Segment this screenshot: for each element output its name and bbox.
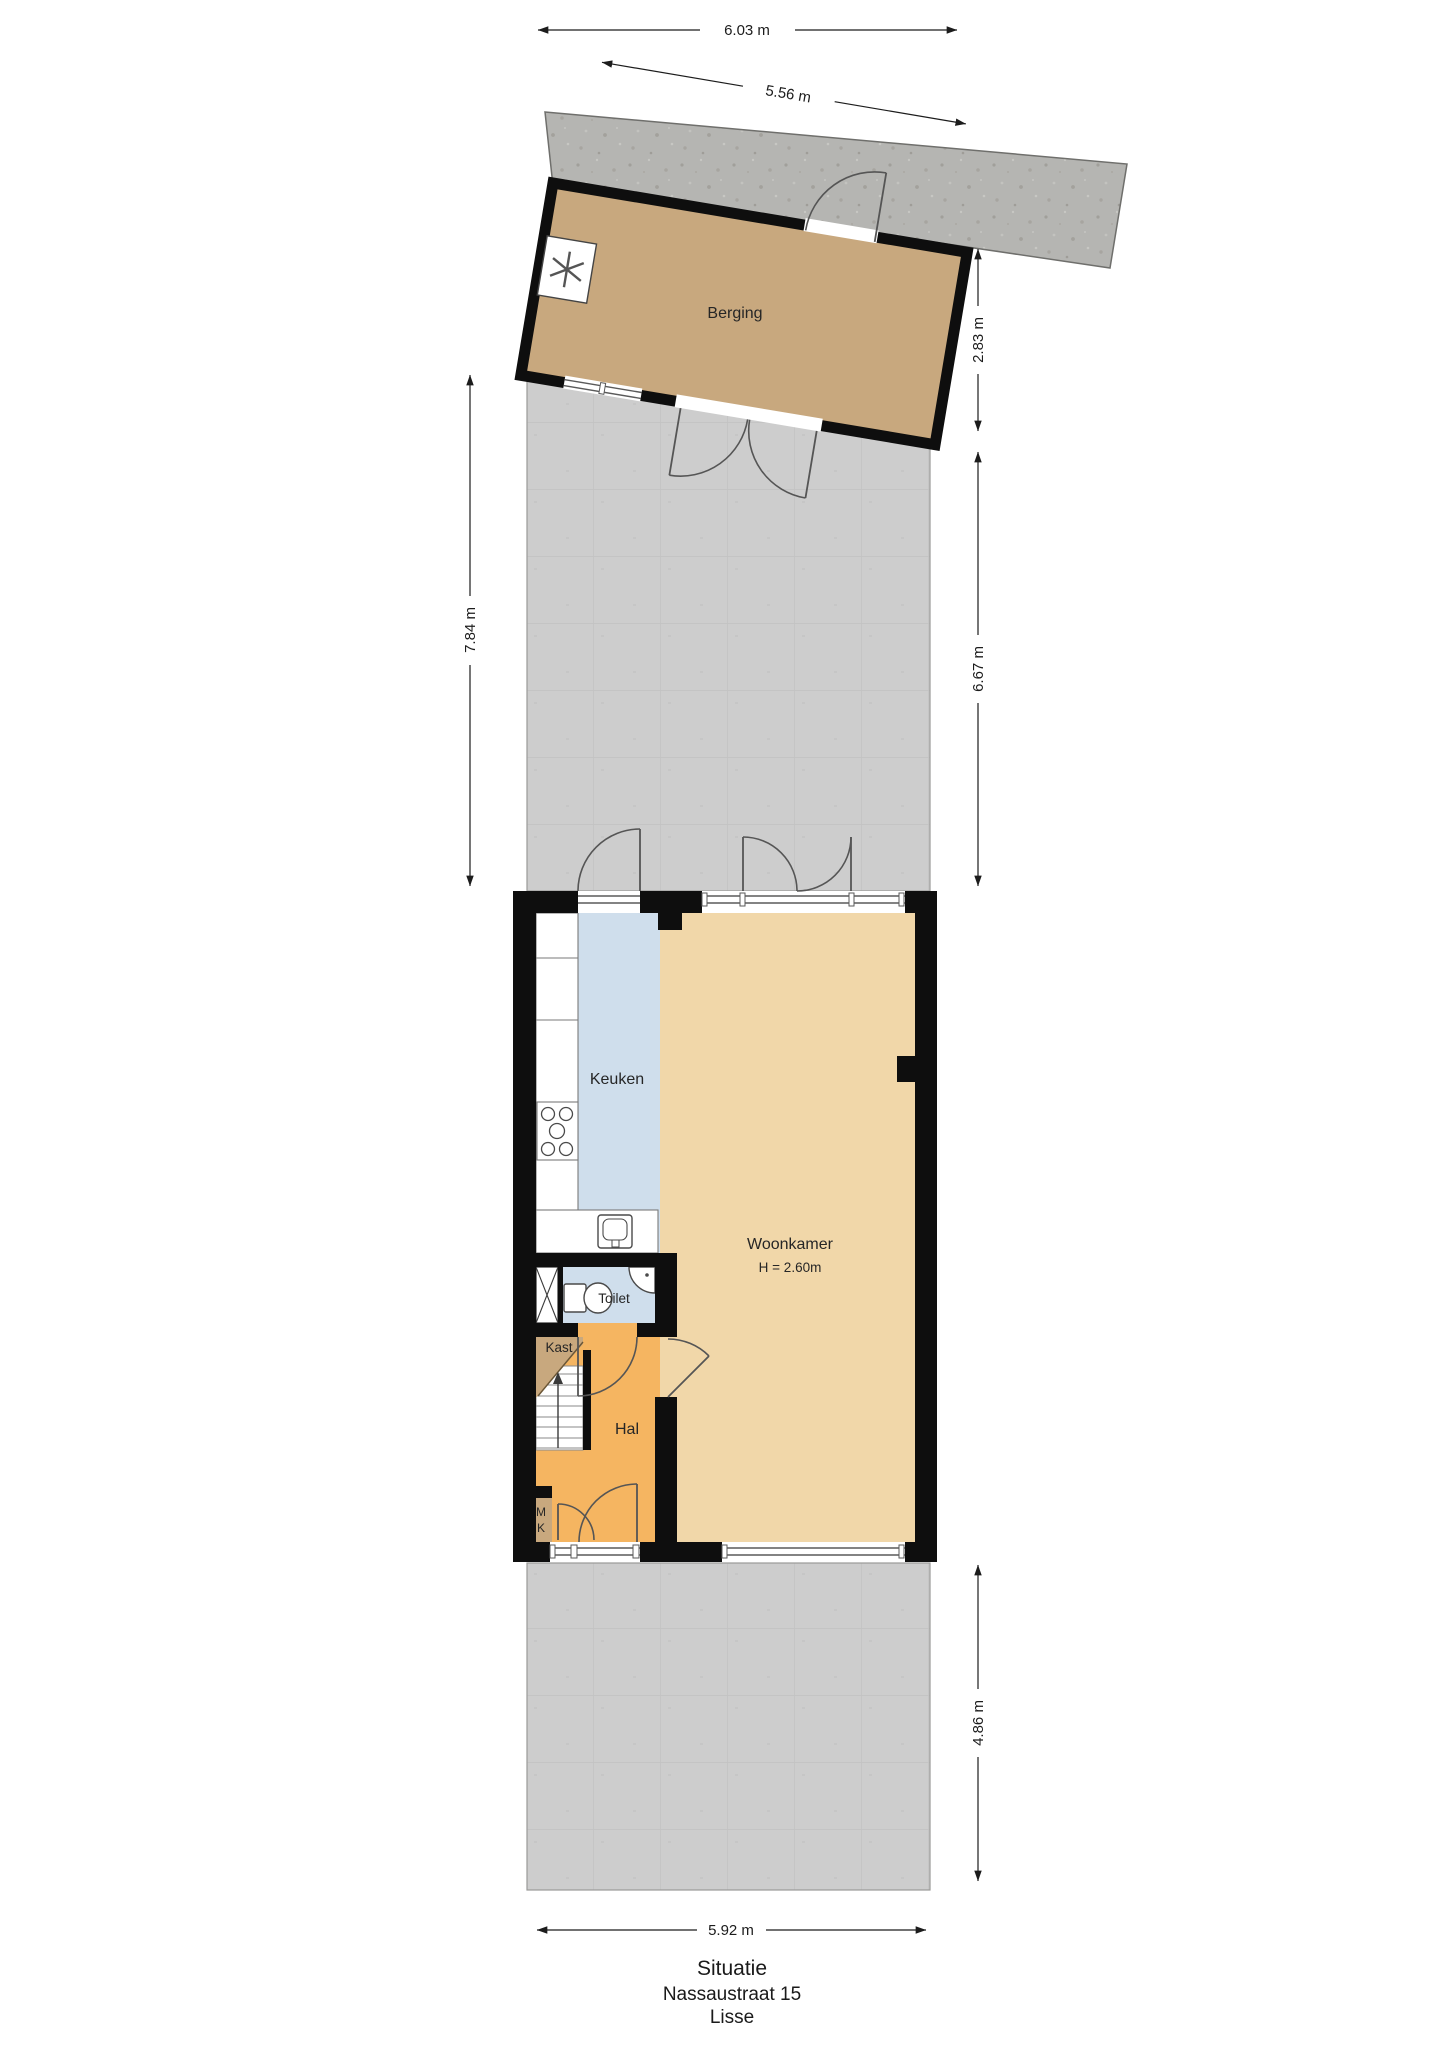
dimension-right-lower-value: 4.86 m	[970, 1700, 987, 1746]
stair-stringer-wall	[583, 1350, 591, 1450]
wall-top-pier	[640, 891, 702, 913]
toilet-label: Toilet	[598, 1291, 630, 1306]
wall-toilet-bottom-left	[536, 1323, 578, 1337]
dimension-top-slanted: 5.56 m	[600, 54, 967, 132]
wall-toilet-top	[513, 1253, 677, 1267]
woonkamer-floor	[660, 900, 915, 1542]
dimension-top-value: 6.03 m	[724, 22, 770, 39]
meterkast-label-k: K	[537, 1521, 545, 1535]
woonkamer-label: Woonkamer	[747, 1236, 834, 1253]
wall-bottom-right	[905, 1542, 937, 1562]
windows-bottom	[550, 1542, 905, 1562]
dimension-right-lower: 4.86 m	[970, 1565, 987, 1881]
meterkast-label-m: M	[536, 1505, 546, 1519]
dimension-right-middle: 6.67 m	[970, 452, 987, 886]
plan-title: Situatie	[697, 1957, 767, 1980]
wall-hal-woonkamer	[655, 1397, 677, 1542]
wall-right-notch	[897, 1056, 915, 1082]
dimension-bottom: 5.92 m	[537, 1922, 926, 1939]
sink-tap	[612, 1240, 619, 1247]
wall-left	[513, 891, 536, 1562]
dimension-right-upper-value: 2.83 m	[970, 317, 987, 363]
wall-bottom-left	[513, 1542, 550, 1562]
floor-plan-page: Berging 6.03 m 5.56 m 2.83 m 7.84 m 6.67…	[0, 0, 1448, 2048]
front-yard-terrace	[527, 1563, 930, 1890]
plan-address: Nassaustraat 15	[663, 1984, 801, 2005]
wall-bottom-pier	[640, 1542, 722, 1562]
dimension-top: 6.03 m	[538, 22, 957, 39]
keuken-label: Keuken	[590, 1071, 644, 1088]
woonkamer-height-label: H = 2.60m	[759, 1260, 822, 1275]
dimension-left: 7.84 m	[462, 375, 479, 886]
plan-city: Lisse	[710, 2007, 754, 2028]
wall-meterkast-stub	[513, 1486, 552, 1498]
wall-shaft-divider	[558, 1267, 563, 1323]
dimension-bottom-value: 5.92 m	[708, 1922, 754, 1939]
basin-tap-dot	[645, 1273, 649, 1277]
toilet-tank	[564, 1284, 586, 1312]
berging-label: Berging	[707, 305, 762, 322]
kitchen-counter-bottom	[536, 1210, 658, 1253]
wall-top-pier-step	[658, 913, 682, 930]
wall-right	[915, 891, 937, 1562]
floor-plan-drawing: Berging 6.03 m 5.56 m 2.83 m 7.84 m 6.67…	[0, 0, 1448, 2048]
kast-label: Kast	[545, 1340, 572, 1355]
dimension-right-middle-value: 6.67 m	[970, 646, 987, 692]
wall-toilet-right	[655, 1253, 677, 1337]
dimension-right-upper: 2.83 m	[970, 249, 987, 431]
kitchen-counter	[536, 913, 578, 1253]
windows-top	[702, 891, 905, 913]
wall-top-left	[513, 891, 578, 913]
hal-label: Hal	[615, 1421, 639, 1438]
dimension-top-slanted-value: 5.56 m	[764, 82, 812, 106]
wall-top-right	[902, 891, 937, 913]
dimension-left-value: 7.84 m	[462, 607, 479, 653]
